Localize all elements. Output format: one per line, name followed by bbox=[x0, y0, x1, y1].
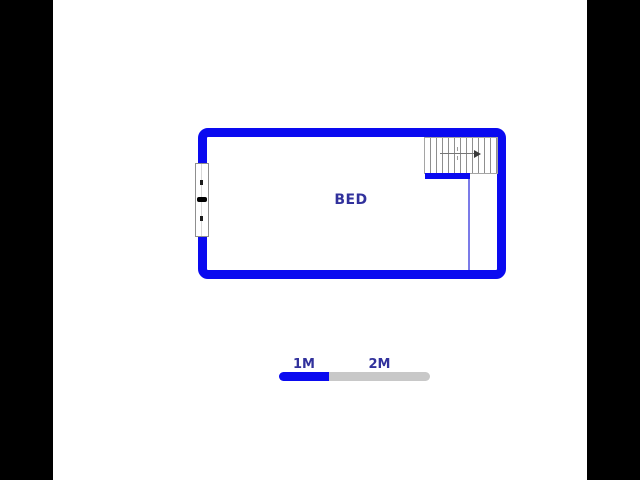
window-handle-mark bbox=[197, 197, 207, 202]
stair-midpoint-tick bbox=[457, 156, 458, 160]
scale-label-2m: 2M bbox=[329, 358, 430, 371]
letterbox-right bbox=[587, 0, 640, 480]
stair-half-wall bbox=[425, 173, 470, 179]
stair-opening-line bbox=[468, 179, 470, 270]
staircase-icon bbox=[424, 137, 498, 174]
stair-midpoint-tick bbox=[457, 147, 458, 151]
window-hinge-mark bbox=[200, 180, 203, 185]
floorplan-canvas: BED 1M 2M bbox=[0, 0, 640, 480]
scale-bar-1m-segment bbox=[279, 372, 329, 381]
scale-label-1m: 1M bbox=[279, 358, 329, 371]
window-icon bbox=[195, 163, 209, 237]
scale-bar bbox=[279, 372, 430, 381]
letterbox-left bbox=[0, 0, 53, 480]
stair-direction-line bbox=[440, 153, 478, 154]
window-hinge-mark bbox=[200, 216, 203, 221]
room-label: BED bbox=[301, 193, 401, 207]
stair-direction-arrowhead-icon bbox=[474, 150, 481, 158]
scale-bar-2m-segment bbox=[329, 372, 430, 381]
